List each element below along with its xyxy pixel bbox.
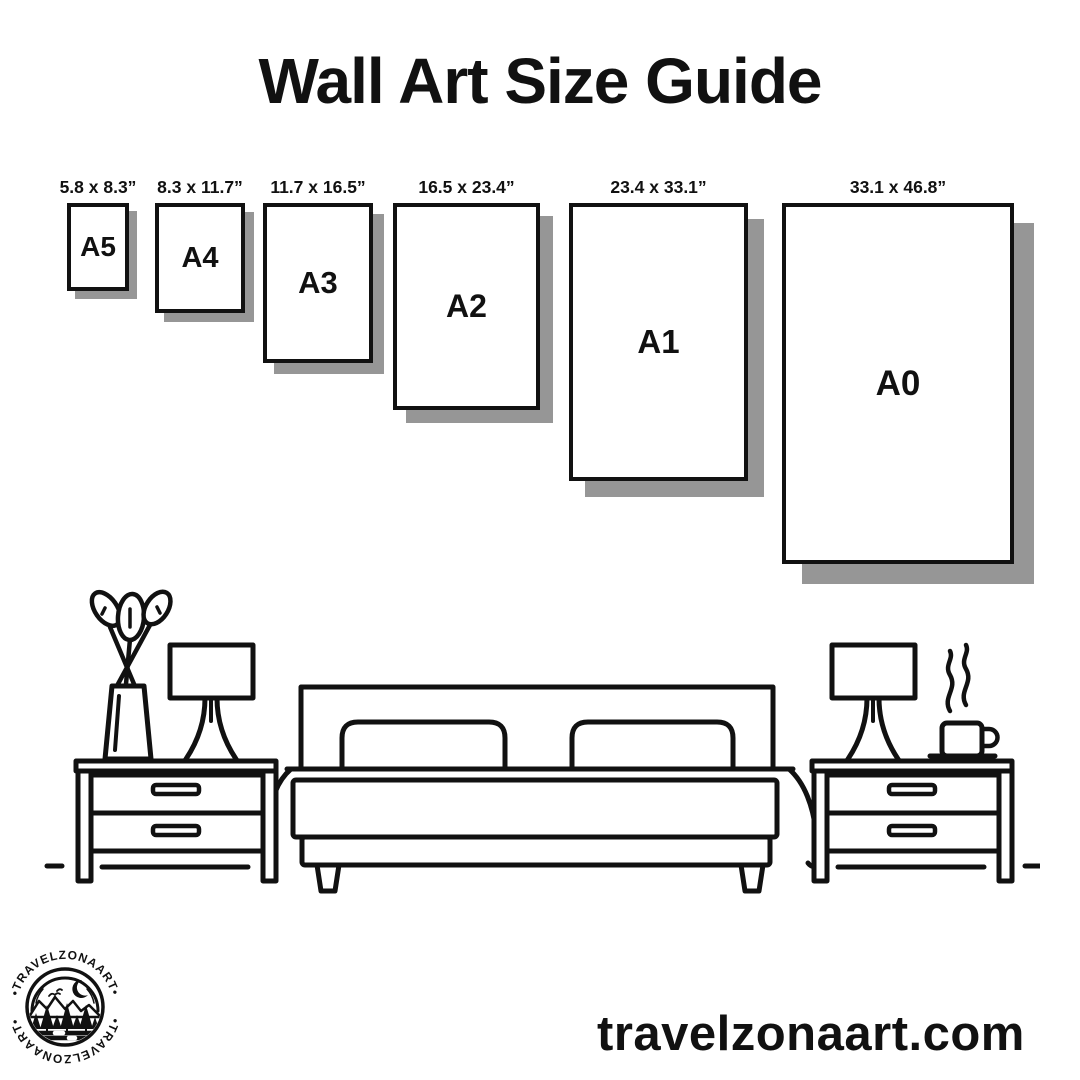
bedroom-illustration [40,583,1040,903]
bed-leg-left [317,865,339,891]
poster-size-name: A0 [876,364,921,404]
poster-a4: 8.3 x 11.7”A4 [155,203,245,313]
poster-dims-label: 5.8 x 8.3” [60,177,137,198]
pillow-left [342,722,505,769]
poster-a0: 33.1 x 46.8”A0 [782,203,1014,564]
page-title: Wall Art Size Guide [0,44,1080,118]
wall-art-size-guide-poster: Wall Art Size Guide 5.8 x 8.3”A58.3 x 11… [0,0,1080,1080]
steam-icon [948,651,953,711]
bed [264,687,822,891]
vase [105,686,151,759]
poster-a1: 23.4 x 33.1”A1 [569,203,748,481]
bed-frame [302,837,770,865]
potted-plant-icon [86,587,176,759]
poster-size-name: A5 [80,231,116,263]
coffee-cup-icon [930,645,998,756]
nightstand-left [76,761,276,881]
cup-body [942,723,982,756]
poster-dims-label: 11.7 x 16.5” [270,177,365,198]
pillow-right [572,722,733,769]
table-lamp-left-icon [170,645,253,761]
logo-landscape [29,978,101,1038]
poster-a5: 5.8 x 8.3”A5 [67,203,129,291]
steam-icon [964,645,969,705]
table-lamp-right-icon [832,645,915,761]
poster-size-name: A4 [181,242,218,275]
mattress [293,780,777,837]
headboard [301,687,773,769]
bird-icon [49,993,60,996]
bird-icon [57,989,62,991]
nightstand-right [812,761,1012,881]
poster-size-name: A3 [298,265,338,301]
website-url: travelzonaart.com [597,1006,1025,1062]
bed-leg-right [741,865,763,891]
poster-size-name: A2 [446,288,487,325]
brand-logo: •TRAVELZONAART• •TRAVELZONAART• [5,947,125,1067]
poster-dims-label: 16.5 x 23.4” [418,177,514,198]
poster-a3: 11.7 x 16.5”A3 [263,203,373,363]
logo-arc-text-top: •TRAVELZONAART• [8,948,123,997]
poster-dims-label: 33.1 x 46.8” [850,177,946,198]
poster-size-name: A1 [637,323,679,361]
poster-a2: 16.5 x 23.4”A2 [393,203,540,410]
poster-dims-label: 23.4 x 33.1” [610,177,706,198]
poster-dims-label: 8.3 x 11.7” [157,177,243,198]
